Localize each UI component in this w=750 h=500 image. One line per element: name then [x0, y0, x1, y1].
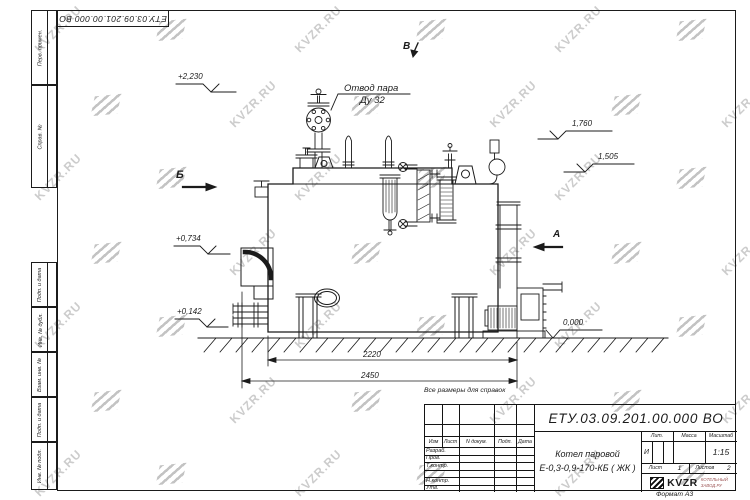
tb-col-list: Лист — [442, 436, 459, 447]
tb-sheet-label: Лист — [649, 465, 662, 471]
tb-lit-label: Лит. — [641, 431, 673, 441]
dim-label-2220: 2220 — [363, 350, 381, 359]
dim-label-2450: 2450 — [361, 371, 379, 380]
tb-col-podp: Подп. — [494, 436, 516, 447]
margin-box-podp-data-2: Подп. и дата — [31, 397, 57, 442]
view-label-a: А — [553, 229, 560, 240]
tb-scale-value: 1:15 — [705, 441, 737, 463]
elevation-label-0000: 0,000 — [563, 318, 583, 327]
tb-row-nkontr: Н.контр. — [426, 477, 458, 485]
tb-row-prov: Пров. — [426, 455, 458, 463]
tb-sheet-value: 1 — [678, 465, 682, 472]
tb-col-data: Дата — [516, 436, 534, 447]
tb-mass-label: Масса — [673, 431, 705, 441]
view-label-b: Б — [176, 169, 184, 181]
margin-label: Инв. № подл. — [38, 449, 44, 483]
margin-box-inv-dubl: Инв. № дубл. — [31, 307, 57, 352]
tb-sheet-cell: Лист 1 — [641, 463, 689, 473]
tb-lit-value: И — [641, 441, 652, 463]
elevation-label-2230: +2,230 — [178, 72, 203, 81]
tb-company-line2: ЗАВОД.РУ — [701, 483, 728, 488]
tb-product-name: Котел паровой Е-0,3-0,9-170-КБ ( ЖК ) — [535, 432, 640, 491]
tb-sheets-value: 2 — [727, 465, 731, 472]
margin-box-vzam-inv: Взам. инв. № — [31, 352, 57, 397]
title-block: Изм Лист N докум. Подп. Дата Разраб. Про… — [424, 404, 736, 491]
tb-product-name-line2: Е-0,3-0,9-170-КБ ( ЖК ) — [539, 462, 635, 476]
margin-label: Подп. и дата — [38, 402, 44, 436]
tb-doc-number: ЕТУ.03.09.201.00.000 ВО — [535, 405, 737, 431]
format-label: Формат А3 — [656, 491, 693, 498]
elevation-label-1505: 1,505 — [598, 152, 618, 161]
view-label-v: В — [403, 41, 410, 52]
tb-row-blank — [426, 470, 458, 478]
tb-col-izm: Изм — [425, 436, 442, 447]
tb-product-name-line1: Котел паровой — [555, 448, 620, 462]
drawing-sheet: { "doc": { "corner_stamp": "ЕТУ.03.09.20… — [0, 0, 750, 500]
tb-company-cell: KVZR КОТЕЛЬНЫЙ ЗАВОД.РУ — [641, 473, 737, 492]
margin-label: Подп. и дата — [38, 267, 44, 301]
elevation-label-0734: +0,734 — [176, 234, 201, 243]
margin-label: Перв. примен. — [38, 29, 44, 66]
elevation-label-1760: 1,760 — [572, 119, 592, 128]
tb-scale-label: Масштаб — [705, 431, 737, 441]
tb-row-utv: Утв. — [426, 485, 458, 493]
margin-box-podp-data-1: Подп. и дата — [31, 262, 57, 307]
elevation-label-0142: +0,142 — [177, 307, 202, 316]
reference-note: Все размеры для справок — [424, 387, 505, 394]
margin-label: Взам. инв. № — [38, 357, 44, 391]
tb-col-dokum: N докум. — [459, 436, 494, 447]
tb-sheets-cell: Листов 2 — [689, 463, 737, 473]
kvzr-logo-icon — [650, 477, 664, 489]
steam-callout-line2: Ду 32 — [360, 95, 385, 106]
margin-box-perv-primen: Перв. примен. — [31, 10, 57, 85]
corner-stamp-number: ЕТУ.03.09.201.00.000 ВО — [59, 14, 167, 24]
tb-row-tkontr: Т.контр. — [426, 462, 458, 470]
tb-row-razrab: Разраб. — [426, 447, 458, 455]
corner-stamp: ЕТУ.03.09.201.00.000 ВО — [57, 10, 169, 27]
tb-company-name: KVZR — [667, 477, 698, 489]
margin-label: Инв. № дубл. — [38, 313, 44, 347]
margin-label: Справ. № — [38, 124, 44, 149]
tb-sheets-label: Листов — [695, 465, 714, 471]
steam-callout-line1: Отвод пара — [344, 83, 398, 94]
margin-box-sprav-no: Справ. № — [31, 85, 57, 188]
margin-box-inv-podl: Инв. № подл. — [31, 442, 57, 490]
